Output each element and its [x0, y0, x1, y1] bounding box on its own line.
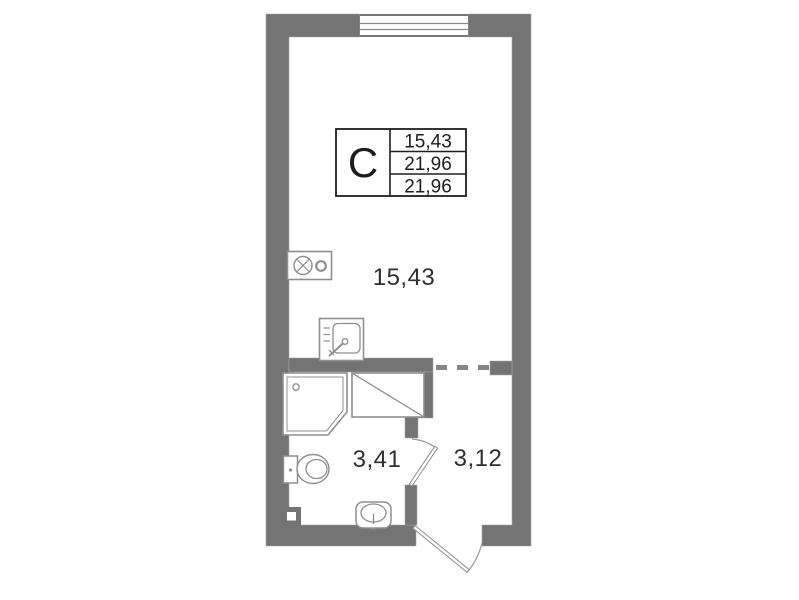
floor-plan-canvas: С 15,43 21,96 21,96 15,43 3,41 3,12: [0, 0, 799, 600]
floor-plan: С 15,43 21,96 21,96 15,43 3,41 3,12: [0, 0, 799, 600]
window-icon: [360, 13, 468, 38]
bathroom-area-label: 3,41: [353, 446, 402, 473]
unit-info-table: С 15,43 21,96 21,96: [336, 129, 466, 198]
ventilation-shaft-icon: [352, 373, 424, 417]
unit-area-row-3: 21,96: [404, 177, 452, 198]
shower-cabin-icon: [283, 373, 347, 435]
unit-area-row-2: 21,96: [404, 154, 452, 175]
kitchen-sink-icon: [320, 319, 364, 361]
bathroom-door-icon: [409, 439, 437, 486]
toilet-icon: [284, 455, 330, 484]
entrance-door-icon: [413, 526, 482, 573]
wall-stub-opening: [490, 361, 512, 375]
living-room-area-label: 15,43: [373, 264, 436, 291]
duct-square: [285, 510, 299, 524]
washbasin-icon: [356, 502, 391, 529]
unit-area-row-1: 15,43: [404, 132, 452, 153]
stove-icon: [288, 252, 332, 280]
wall-bathroom-vertical-lower: [405, 485, 417, 525]
hallway-area-label: 3,12: [454, 445, 503, 472]
unit-type-letter: С: [348, 139, 378, 186]
